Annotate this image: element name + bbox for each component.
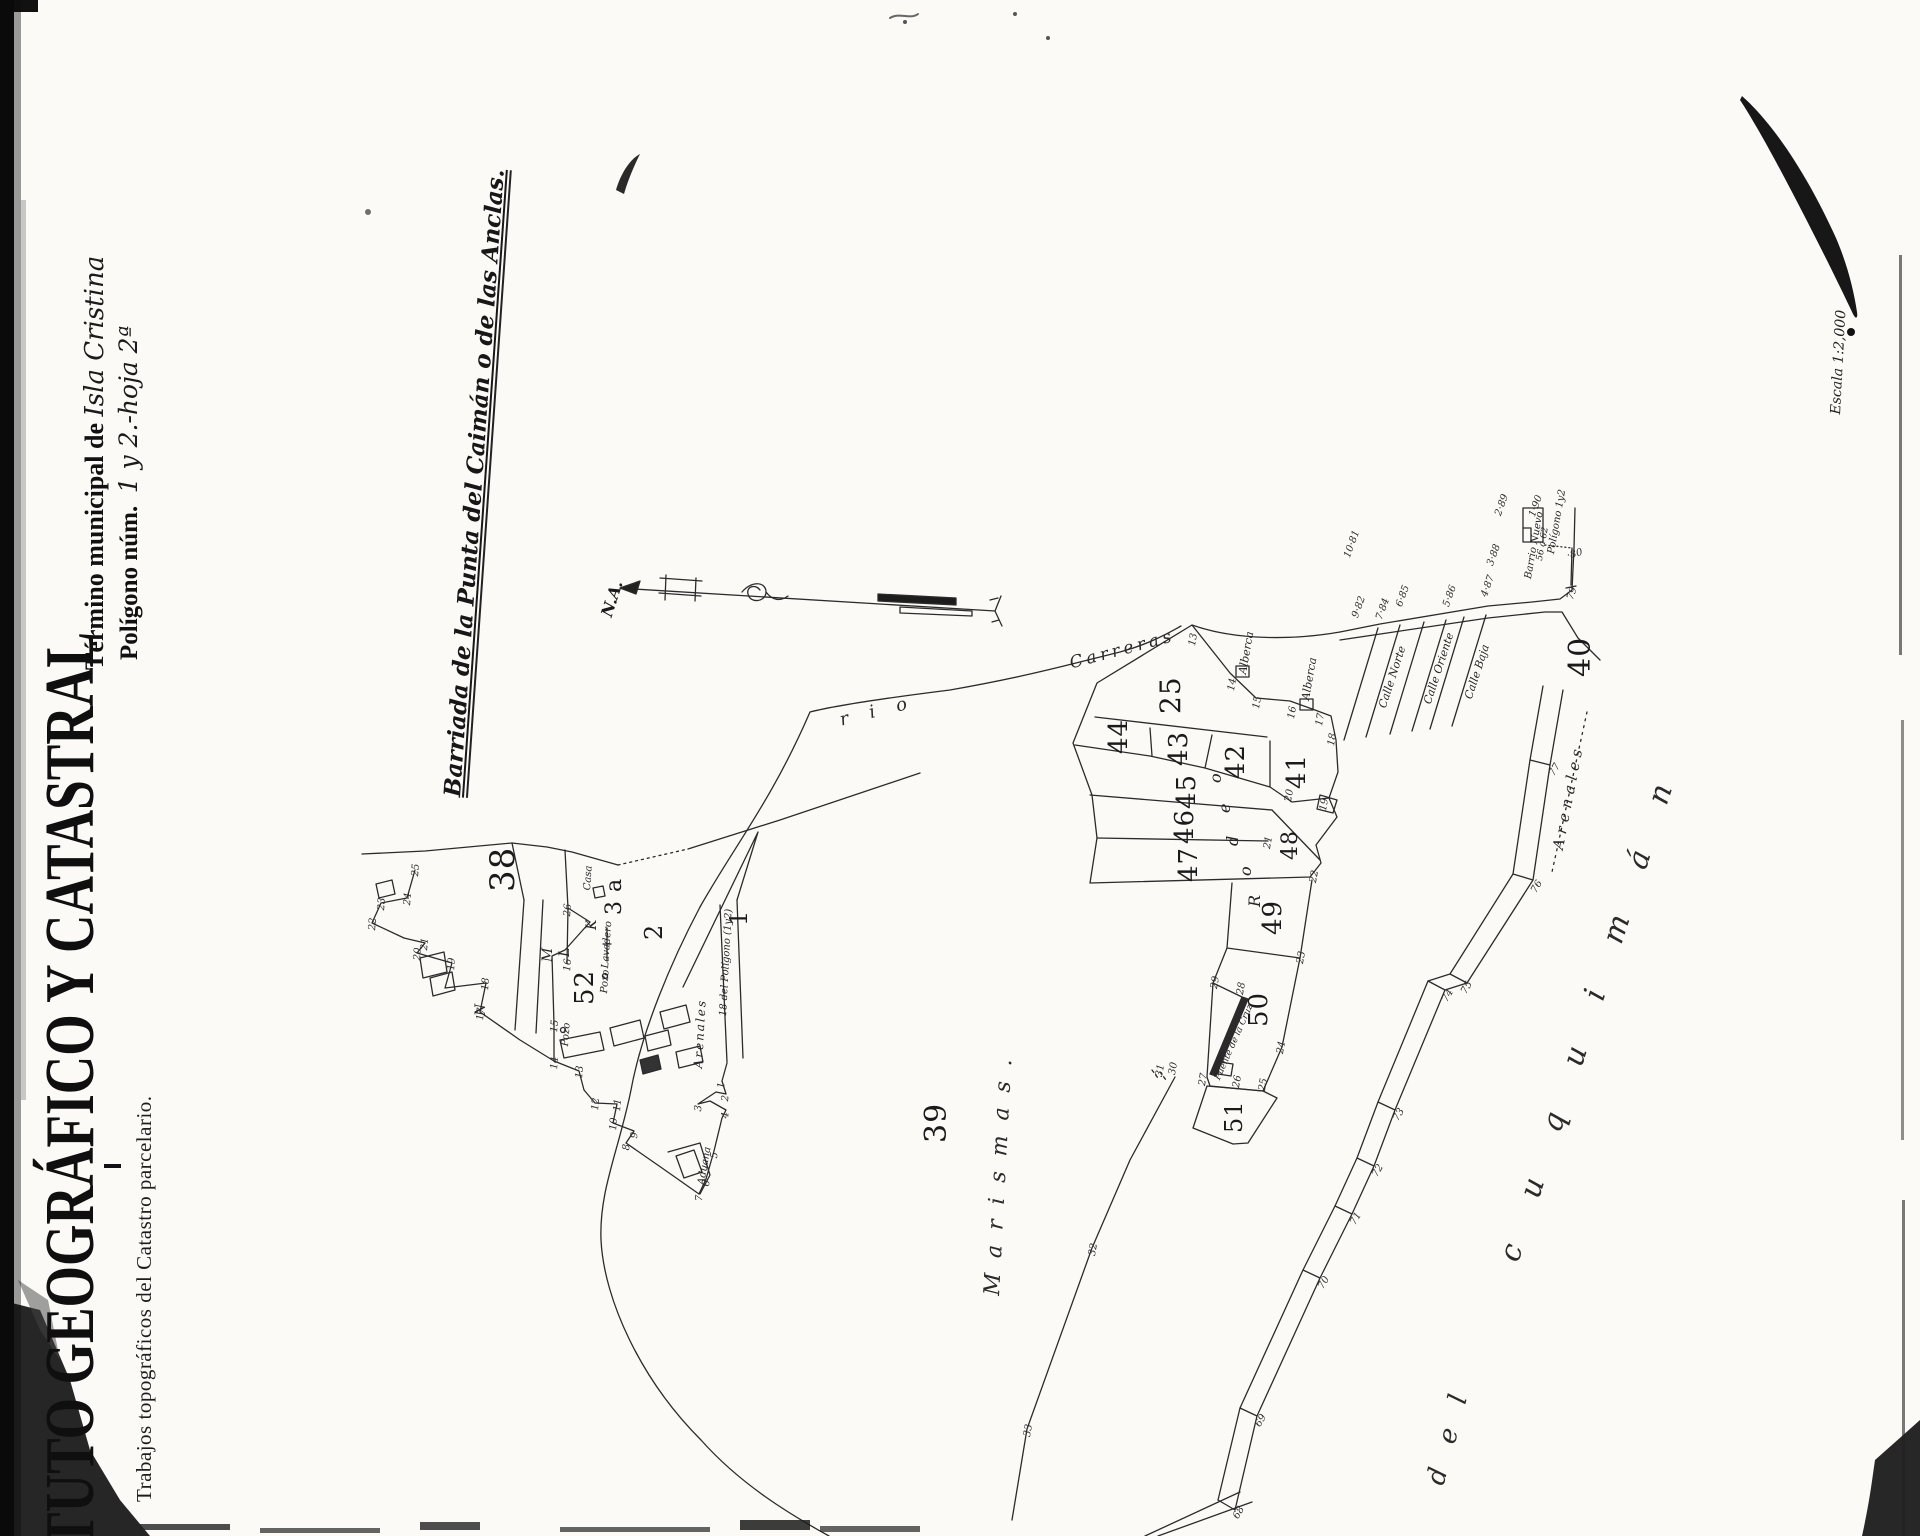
label-casa: Casa	[583, 865, 595, 890]
subparcel-letter-o: o	[1208, 773, 1224, 783]
village-vertex-9: 9	[630, 1132, 641, 1139]
street-arenales-village: Arenales	[692, 999, 708, 1069]
village-vertex-12: 12	[591, 1097, 602, 1111]
village-vertex-3: 3	[694, 1105, 705, 1112]
village-vertex-11: 11	[613, 1098, 624, 1112]
institute-subtitle: Trabajos topográficos del Catastro parce…	[134, 1095, 155, 1502]
parcel-number-40: 40	[1566, 637, 1596, 677]
arenales-road-lines	[1145, 686, 1587, 1536]
municipality-line: Término municipal de Isla Cristina	[82, 256, 108, 670]
corner-letter-L: L	[558, 948, 572, 957]
subparcel-letter-R: R	[1247, 895, 1263, 907]
parcel-number-45: 45	[1174, 774, 1200, 809]
parcel-number-48: 48	[1280, 830, 1302, 860]
village-vertex-17: 17	[476, 1007, 487, 1021]
polygon-label: Polígono núm.	[116, 493, 143, 660]
municipality-label: Término municipal de	[80, 416, 109, 670]
village-vertex-4: 4	[721, 1112, 732, 1119]
village-vertex-10: 10	[609, 1117, 620, 1131]
scanned-map-page: TUTO GEOGRÁFICO Y CATASTRAL Trabajos top…	[0, 0, 1920, 1536]
village-vertex-26: 26	[563, 903, 574, 917]
village-vertex-7: 7	[695, 1195, 706, 1202]
label-pozo-1: Pozo	[600, 969, 612, 993]
corner-letter-M: M	[541, 948, 555, 962]
subparcel-letter-e: e	[1217, 804, 1233, 813]
village-lines	[362, 773, 920, 1194]
village-vertex-13: 13	[575, 1065, 586, 1079]
parcel-number-25: 25	[1157, 676, 1185, 714]
map-linework	[0, 0, 1920, 1536]
village-vertex-1: 1	[717, 1082, 728, 1089]
village-vertex-6: 6	[702, 1180, 713, 1187]
parcel-number-39: 39	[922, 1103, 952, 1143]
subparcel-letter-o2: o	[1238, 866, 1254, 876]
village-vertex-19: 19	[447, 957, 458, 971]
parcel-number-46: 46	[1172, 809, 1198, 844]
village-vertex-24: 24	[403, 892, 414, 906]
village-vertex-15: 15	[550, 1019, 561, 1033]
village-vertex-5: 5	[710, 1152, 721, 1159]
title-divider	[104, 1164, 121, 1168]
polygon-value: 1 y 2.-hoja 2ª	[114, 326, 143, 494]
north-arrow	[620, 575, 1002, 626]
institute-title: TUTO GEOGRÁFICO Y CATASTRAL	[36, 632, 105, 1536]
subparcel-letter-d: d	[1225, 836, 1241, 846]
village-vertex-23: 23	[377, 897, 388, 911]
village-vertex-20: 20	[413, 947, 424, 961]
parcel-number-47: 47	[1176, 847, 1202, 882]
village-vertex-22: 22	[368, 917, 379, 931]
village-vertex-14: 14	[550, 1056, 561, 1070]
parcel-number-52: 52	[572, 970, 598, 1005]
village-vertex-18: 18	[481, 977, 492, 991]
village-vertex-16: 16	[563, 958, 574, 972]
parcel-number-51: 51	[1222, 1100, 1246, 1133]
parcel-number-2: 2	[642, 924, 666, 940]
corner-letter-K: K	[585, 920, 599, 930]
village-vertex-25: 25	[411, 863, 422, 877]
village-vertex-8: 8	[622, 1144, 633, 1151]
village-vertex-2: 2	[721, 1095, 732, 1102]
parcel-number-43: 43	[1166, 731, 1192, 766]
scan-artifacts	[0, 0, 1920, 1536]
municipality-value: Isla Cristina	[80, 256, 110, 417]
label-pozo-2: Pozo	[561, 1022, 573, 1046]
parcel-number-41: 41	[1284, 754, 1310, 789]
parcel-number-38: 38	[486, 847, 520, 892]
parcel-number-42: 42	[1223, 744, 1249, 779]
polygon-line: Polígono núm. 1 y 2.-hoja 2ª	[116, 326, 142, 660]
parcel-number-3a: 3 a	[604, 878, 626, 915]
parcel-number-44: 44	[1106, 719, 1132, 754]
